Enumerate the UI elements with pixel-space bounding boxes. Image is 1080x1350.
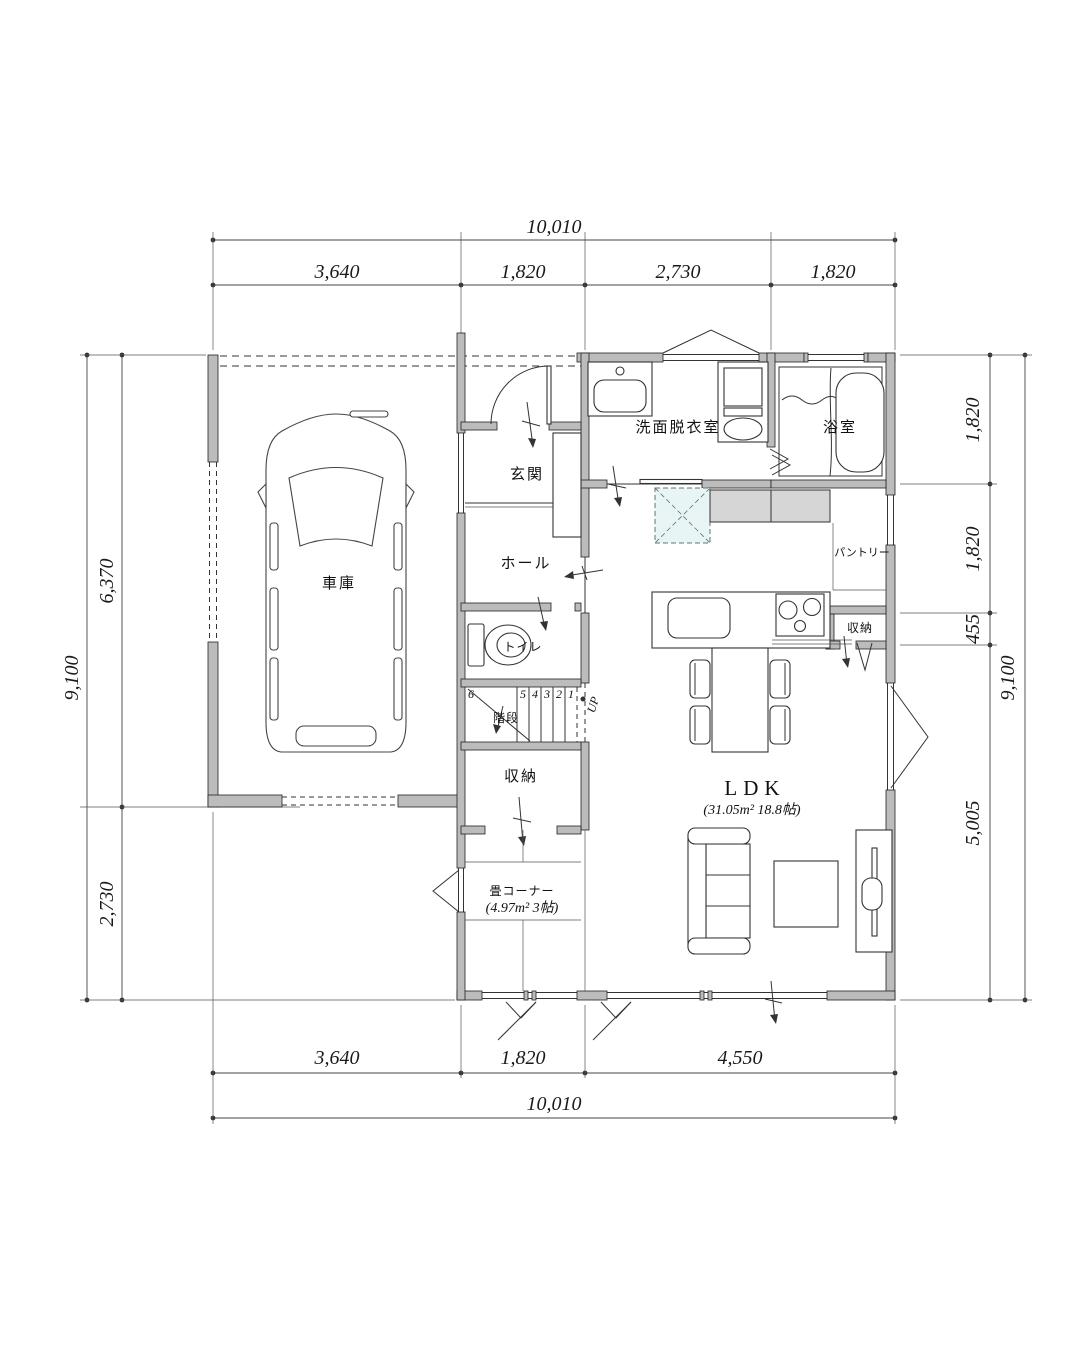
living-set bbox=[688, 828, 892, 954]
stair-number: 2 bbox=[556, 687, 562, 701]
dining-set bbox=[690, 648, 790, 752]
washer-panel bbox=[724, 408, 762, 416]
dim-bottom-seg-1: 3,640 bbox=[314, 1047, 360, 1069]
dimension-top: 10,010 3,640 1,820 2,730 1,820 bbox=[211, 216, 898, 350]
faucet bbox=[616, 367, 624, 375]
label-storage-stairs: 収納 bbox=[504, 767, 538, 785]
dim-right-seg-3: 455 bbox=[962, 614, 984, 644]
burner bbox=[779, 601, 797, 619]
car-front-marker bbox=[350, 411, 388, 417]
kitchen-sink bbox=[668, 598, 730, 638]
casement-window-tatami bbox=[433, 870, 459, 912]
label-toilet: トイレ bbox=[503, 640, 542, 654]
dim-top-seg-1: 3,640 bbox=[314, 261, 360, 283]
dim-bottom-total: 10,010 bbox=[527, 1093, 582, 1115]
dimension-bottom: 3,640 1,820 4,550 10,010 bbox=[211, 812, 898, 1124]
toilet-tank bbox=[468, 624, 484, 666]
floor-plan-page: 10,010 3,640 1,820 2,730 1,820 9,100 6,3… bbox=[0, 0, 1080, 1350]
sofa-arm bbox=[688, 828, 750, 844]
stair-numbers: 6 5 4 3 2 1 bbox=[468, 687, 574, 701]
label-washroom: 洗面脱衣室 bbox=[635, 418, 720, 436]
dim-bottom-seg-2: 1,820 bbox=[501, 1047, 546, 1069]
label-stairs: 階段 bbox=[493, 710, 519, 725]
dim-top-seg-2: 1,820 bbox=[501, 261, 546, 283]
car-window bbox=[270, 658, 278, 720]
stair-number: 4 bbox=[532, 687, 538, 701]
dim-left-total: 9,100 bbox=[61, 656, 83, 701]
sofa-arm bbox=[688, 938, 750, 954]
entrance-door-leaf bbox=[547, 366, 551, 424]
stair-number: 6 bbox=[468, 687, 474, 701]
sliding-door-panel bbox=[640, 480, 702, 484]
car-mirror-right bbox=[406, 484, 414, 508]
bath-wave bbox=[782, 396, 836, 404]
label-ldk: LDK bbox=[724, 776, 785, 800]
label-tatami: 畳コーナー bbox=[489, 884, 554, 898]
sink-basin bbox=[594, 380, 646, 412]
label-ldk-area: (31.05m² 18.8帖) bbox=[703, 802, 800, 818]
label-up: UP bbox=[584, 694, 602, 714]
dining-table bbox=[712, 648, 768, 752]
coffee-table bbox=[774, 861, 838, 927]
dim-right-seg-2: 1,820 bbox=[962, 527, 984, 572]
washer-drum bbox=[724, 418, 762, 440]
stair-number: 1 bbox=[568, 687, 574, 701]
label-tatami-area: (4.97m² 3帖) bbox=[486, 900, 559, 916]
entrance-door-arc bbox=[491, 366, 549, 424]
car-rear-window bbox=[296, 726, 376, 746]
car-window bbox=[394, 588, 402, 650]
car-mirror-left bbox=[258, 484, 266, 508]
floor-plan-drawing: 10,010 3,640 1,820 2,730 1,820 9,100 6,3… bbox=[0, 0, 1080, 1350]
dim-left-seg-2: 2,730 bbox=[96, 882, 118, 927]
casement-window-ldk bbox=[891, 686, 928, 788]
shoe-cabinet bbox=[553, 433, 581, 537]
stair-number: 5 bbox=[520, 687, 526, 701]
dim-right-total: 9,100 bbox=[997, 656, 1019, 701]
sofa-seat bbox=[706, 844, 750, 938]
label-entrance: 玄関 bbox=[510, 465, 544, 483]
dim-left-seg-1: 6,370 bbox=[96, 559, 118, 604]
dim-bottom-seg-3: 4,550 bbox=[718, 1047, 763, 1069]
sofa-back bbox=[688, 830, 706, 952]
dim-top-seg-3: 2,730 bbox=[656, 261, 701, 283]
chair bbox=[770, 660, 790, 698]
entrance-fixtures bbox=[491, 366, 581, 537]
car-windshield bbox=[289, 468, 383, 547]
label-storage-kitchen: 収納 bbox=[847, 621, 873, 635]
label-pantry: パントリー bbox=[834, 546, 890, 559]
car-window bbox=[394, 658, 402, 720]
car-window bbox=[270, 523, 278, 570]
burner bbox=[795, 621, 806, 632]
car-window bbox=[394, 523, 402, 570]
dim-top-total: 10,010 bbox=[527, 216, 582, 238]
dimension-right: 1,820 1,820 455 5,005 9,100 bbox=[900, 353, 1032, 1003]
bay-window-washroom bbox=[663, 330, 759, 353]
tv-stand bbox=[862, 878, 882, 910]
car-window bbox=[270, 588, 278, 650]
burner bbox=[804, 599, 821, 616]
dim-top-seg-4: 1,820 bbox=[811, 261, 856, 283]
dim-right-seg-1: 1,820 bbox=[962, 398, 984, 443]
chair bbox=[690, 706, 710, 744]
label-bath: 浴室 bbox=[823, 418, 857, 436]
chair bbox=[690, 660, 710, 698]
label-garage: 車庫 bbox=[322, 574, 356, 592]
label-hall: ホール bbox=[500, 554, 551, 572]
chair bbox=[770, 706, 790, 744]
cupboard-counter bbox=[710, 490, 830, 522]
stair-number: 3 bbox=[543, 687, 550, 701]
dim-right-seg-4: 5,005 bbox=[962, 801, 984, 846]
washer-lid bbox=[724, 368, 762, 406]
